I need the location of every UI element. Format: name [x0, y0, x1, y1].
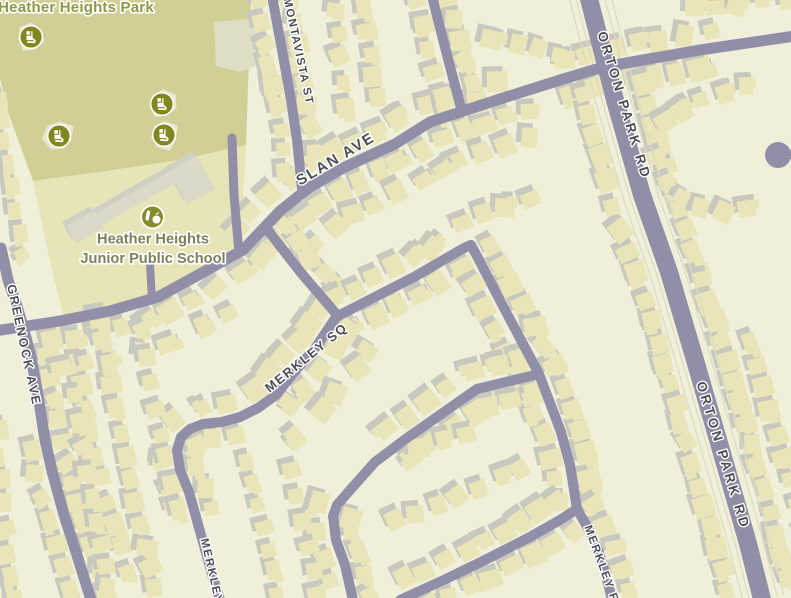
svg-text:Heather Heights Park: Heather Heights Park	[0, 0, 154, 16]
svg-text:Heather Heights: Heather Heights	[97, 232, 209, 248]
svg-text:Junior Public School: Junior Public School	[80, 251, 225, 267]
